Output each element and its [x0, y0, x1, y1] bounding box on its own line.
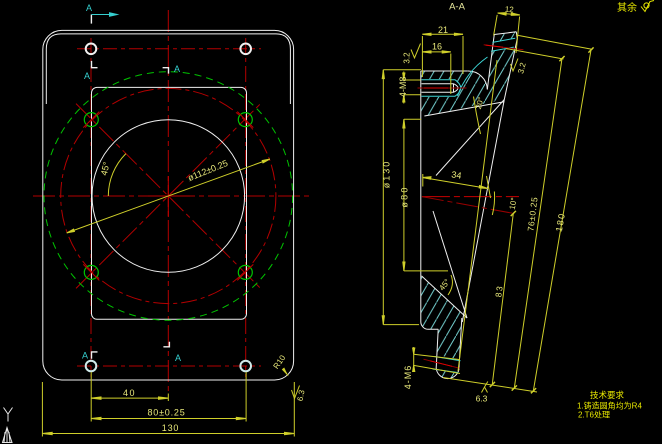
svg-text:1.铸造圆角均为R4: 1.铸造圆角均为R4 [577, 401, 642, 411]
svg-text:技术要求: 技术要求 [590, 390, 625, 400]
svg-text:80±0.25: 80±0.25 [147, 408, 185, 418]
svg-text:21: 21 [438, 25, 448, 35]
svg-text:A: A [86, 3, 92, 13]
svg-text:12: 12 [504, 5, 514, 15]
svg-text:A: A [82, 351, 88, 361]
svg-text:ø80: ø80 [400, 185, 410, 207]
svg-text:A: A [175, 353, 181, 363]
svg-text:4-M8: 4-M8 [398, 77, 408, 98]
svg-text:83: 83 [493, 284, 505, 298]
svg-text:A-A: A-A [449, 2, 466, 13]
svg-text:其余: 其余 [617, 1, 637, 14]
svg-text:40: 40 [123, 388, 136, 398]
svg-text:2.T6处理: 2.T6处理 [578, 410, 610, 420]
svg-text:34: 34 [451, 169, 462, 180]
svg-text:130: 130 [162, 423, 179, 433]
svg-text:ø130: ø130 [381, 160, 391, 189]
svg-text:4-M6: 4-M6 [403, 365, 413, 390]
svg-text:A: A [84, 71, 90, 81]
svg-text:6.3: 6.3 [476, 394, 488, 404]
svg-text:3.2: 3.2 [403, 52, 412, 64]
svg-text:16: 16 [432, 42, 442, 52]
svg-text:A: A [174, 64, 180, 74]
